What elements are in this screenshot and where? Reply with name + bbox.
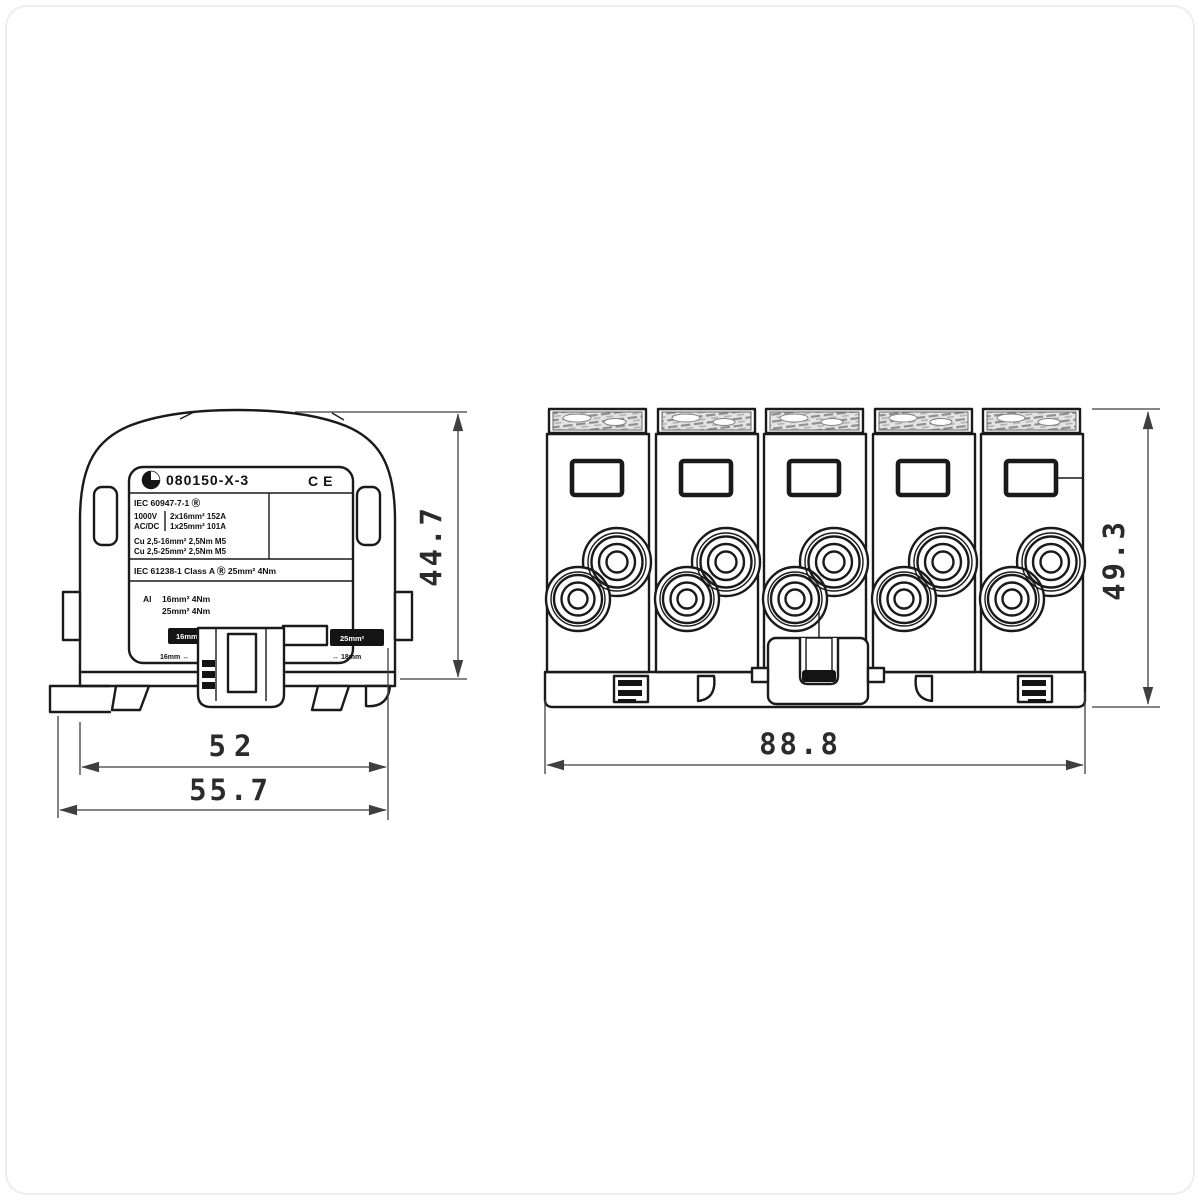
rating-2: 1x25mm² 101A (170, 522, 226, 531)
side-tab-right (395, 592, 412, 640)
pole-module (546, 409, 651, 672)
dim-value-88-8: 88.8 (759, 727, 841, 761)
standard-line-1: IEC 60947-7-1 Ⓡ (134, 498, 201, 508)
side-view: 080150-X-3 CE IEC 60947-7-1 Ⓡ 1000V AC/D… (50, 410, 412, 712)
standard-line-2: IEC 61238-1 Class A Ⓡ 25mm² 4Nm (134, 566, 276, 576)
pole-module (872, 409, 977, 672)
pole-module (655, 409, 760, 672)
dim-value-55-7: 55.7 (189, 773, 271, 807)
side-tab-left (63, 592, 80, 640)
dim-value-49-3: 49.3 (1097, 519, 1131, 601)
cu-spec-2: Cu 2,5-25mm² 2,5Nm M5 (134, 547, 227, 556)
side-foot-hook (366, 686, 390, 706)
rating-1: 2x16mm² 152A (170, 512, 226, 521)
tag-right-note: ↔ 18mm (332, 654, 361, 661)
wire-window (789, 461, 839, 495)
front-view (545, 409, 1085, 707)
side-foot-left (112, 686, 149, 710)
tag-right-box: 25mm² (340, 634, 365, 643)
al-prefix: Al (143, 594, 152, 604)
wire-window (572, 461, 622, 495)
tag-left-note: 16mm ↔ (160, 654, 189, 661)
dim-value-44-7: 44.7 (414, 505, 448, 587)
dim-value-52: 52 (209, 729, 260, 763)
pole-module (980, 409, 1085, 672)
manufacturer-logo-icon (143, 472, 160, 489)
side-foot-right (312, 686, 349, 710)
wire-window (681, 461, 731, 495)
cu-spec-1: Cu 2,5-16mm² 2,5Nm M5 (134, 537, 227, 546)
wire-window (1006, 461, 1056, 495)
al-spec-2: 25mm² 4Nm (162, 606, 211, 616)
pole-module (763, 409, 868, 672)
wire-window (898, 461, 948, 495)
dim-front-height: 49.3 (1092, 409, 1160, 707)
acdc: AC/DC (134, 522, 160, 531)
part-number: 080150-X-3 (166, 472, 249, 488)
side-center-clip (198, 628, 284, 707)
ce-mark: CE (308, 473, 337, 489)
voltage: 1000V (134, 512, 158, 521)
technical-drawing: 080150-X-3 CE IEC 60947-7-1 Ⓡ 1000V AC/D… (0, 0, 1200, 1200)
drawing-canvas: 080150-X-3 CE IEC 60947-7-1 Ⓡ 1000V AC/D… (0, 0, 1200, 1200)
al-spec-1: 16mm² 4Nm (162, 594, 211, 604)
